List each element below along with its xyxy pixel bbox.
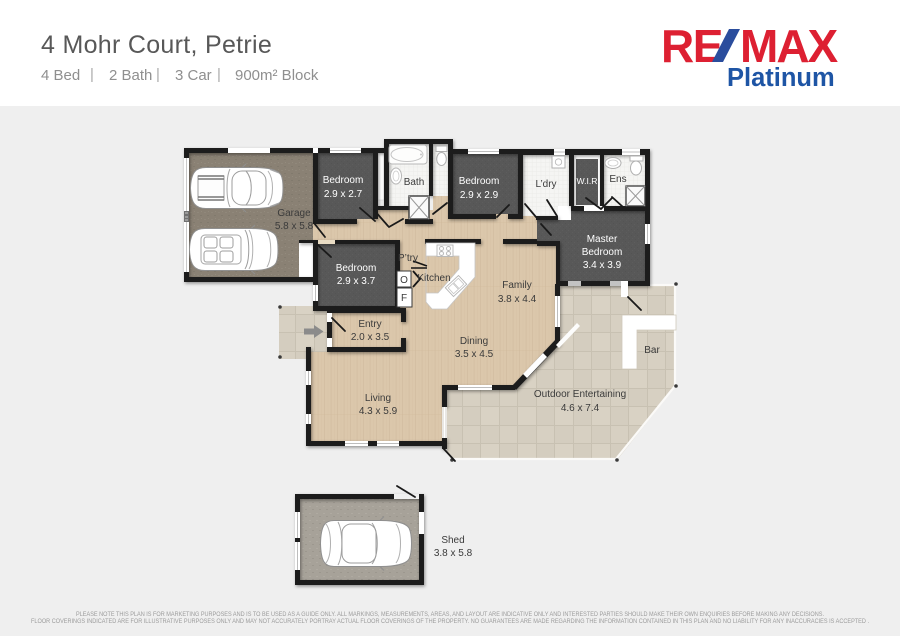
svg-text:Dining: Dining: [460, 336, 488, 347]
svg-text:4.3 x 5.9: 4.3 x 5.9: [359, 406, 398, 417]
svg-text:5.8 x 5.8: 5.8 x 5.8: [275, 221, 314, 232]
svg-text:|: |: [90, 66, 94, 83]
svg-text:3.8 x 4.4: 3.8 x 4.4: [498, 294, 537, 305]
svg-text:F: F: [401, 293, 407, 304]
svg-text:3.8 x 5.8: 3.8 x 5.8: [434, 548, 473, 559]
svg-text:O: O: [400, 275, 408, 286]
svg-text:3.4 x 3.9: 3.4 x 3.9: [583, 260, 622, 271]
svg-text:L’dry: L’dry: [535, 179, 556, 190]
svg-text:2.9 x 2.9: 2.9 x 2.9: [460, 190, 499, 201]
svg-text:FLOOR COVERINGS INDICATED ARE: FLOOR COVERINGS INDICATED ARE FOR ILLUST…: [31, 619, 869, 625]
svg-text:Garage: Garage: [277, 208, 311, 219]
svg-text:Family: Family: [502, 280, 531, 291]
svg-text:Bedroom: Bedroom: [459, 176, 500, 187]
svg-text:Bar: Bar: [644, 345, 660, 356]
svg-text:Bedroom: Bedroom: [582, 247, 623, 258]
svg-text:Shed: Shed: [441, 535, 464, 546]
svg-text:Bedroom: Bedroom: [336, 263, 377, 274]
svg-text:Entry: Entry: [358, 319, 381, 330]
svg-text:Ens: Ens: [609, 174, 626, 185]
svg-text:Outdoor Entertaining: Outdoor Entertaining: [534, 389, 626, 400]
svg-text:2.9 x 3.7: 2.9 x 3.7: [337, 276, 376, 287]
svg-text:Kitchen: Kitchen: [417, 273, 450, 284]
svg-text:|: |: [217, 66, 221, 83]
svg-text:3 Car: 3 Car: [175, 67, 212, 84]
svg-text:P’try: P’try: [398, 253, 418, 264]
svg-text:|: |: [156, 66, 160, 83]
svg-text:PLEASE NOTE THIS PLAN IS FOR M: PLEASE NOTE THIS PLAN IS FOR MARKETING P…: [76, 612, 824, 618]
svg-text:2 Bath: 2 Bath: [109, 67, 152, 84]
svg-text:Bath: Bath: [404, 177, 425, 188]
svg-text:4 Bed: 4 Bed: [41, 67, 80, 84]
svg-text:Living: Living: [365, 393, 391, 404]
svg-text:900m² Block: 900m² Block: [235, 67, 319, 84]
svg-text:3.5 x 4.5: 3.5 x 4.5: [455, 349, 494, 360]
svg-text:4 Mohr Court, Petrie: 4 Mohr Court, Petrie: [41, 31, 272, 59]
svg-text:2.0 x 3.5: 2.0 x 3.5: [351, 332, 390, 343]
svg-text:W.I.R: W.I.R: [576, 176, 597, 186]
svg-text:2.9 x 2.7: 2.9 x 2.7: [324, 189, 363, 200]
svg-text:4.6 x 7.4: 4.6 x 7.4: [561, 403, 600, 414]
svg-text:Platinum: Platinum: [727, 64, 835, 92]
svg-text:RE: RE: [661, 20, 722, 72]
svg-text:Master: Master: [587, 234, 618, 245]
svg-text:Bedroom: Bedroom: [323, 175, 364, 186]
